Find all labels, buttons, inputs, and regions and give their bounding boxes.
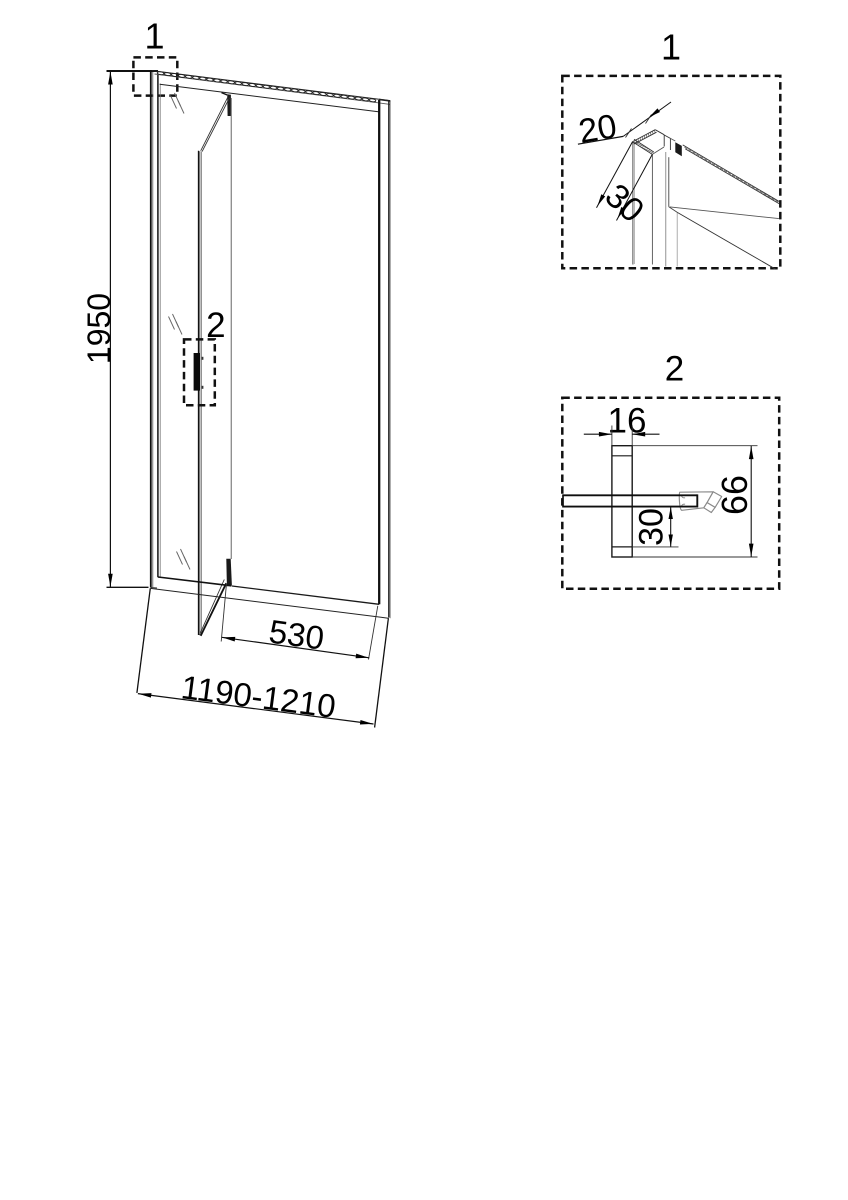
- svg-text:20: 20: [576, 107, 620, 151]
- svg-text:1: 1: [661, 27, 681, 68]
- svg-text:2: 2: [665, 350, 684, 389]
- svg-text:1: 1: [144, 16, 164, 57]
- svg-text:66: 66: [714, 475, 755, 515]
- svg-text:30: 30: [633, 508, 671, 546]
- svg-text:530: 530: [267, 613, 327, 657]
- svg-text:1950: 1950: [81, 293, 117, 364]
